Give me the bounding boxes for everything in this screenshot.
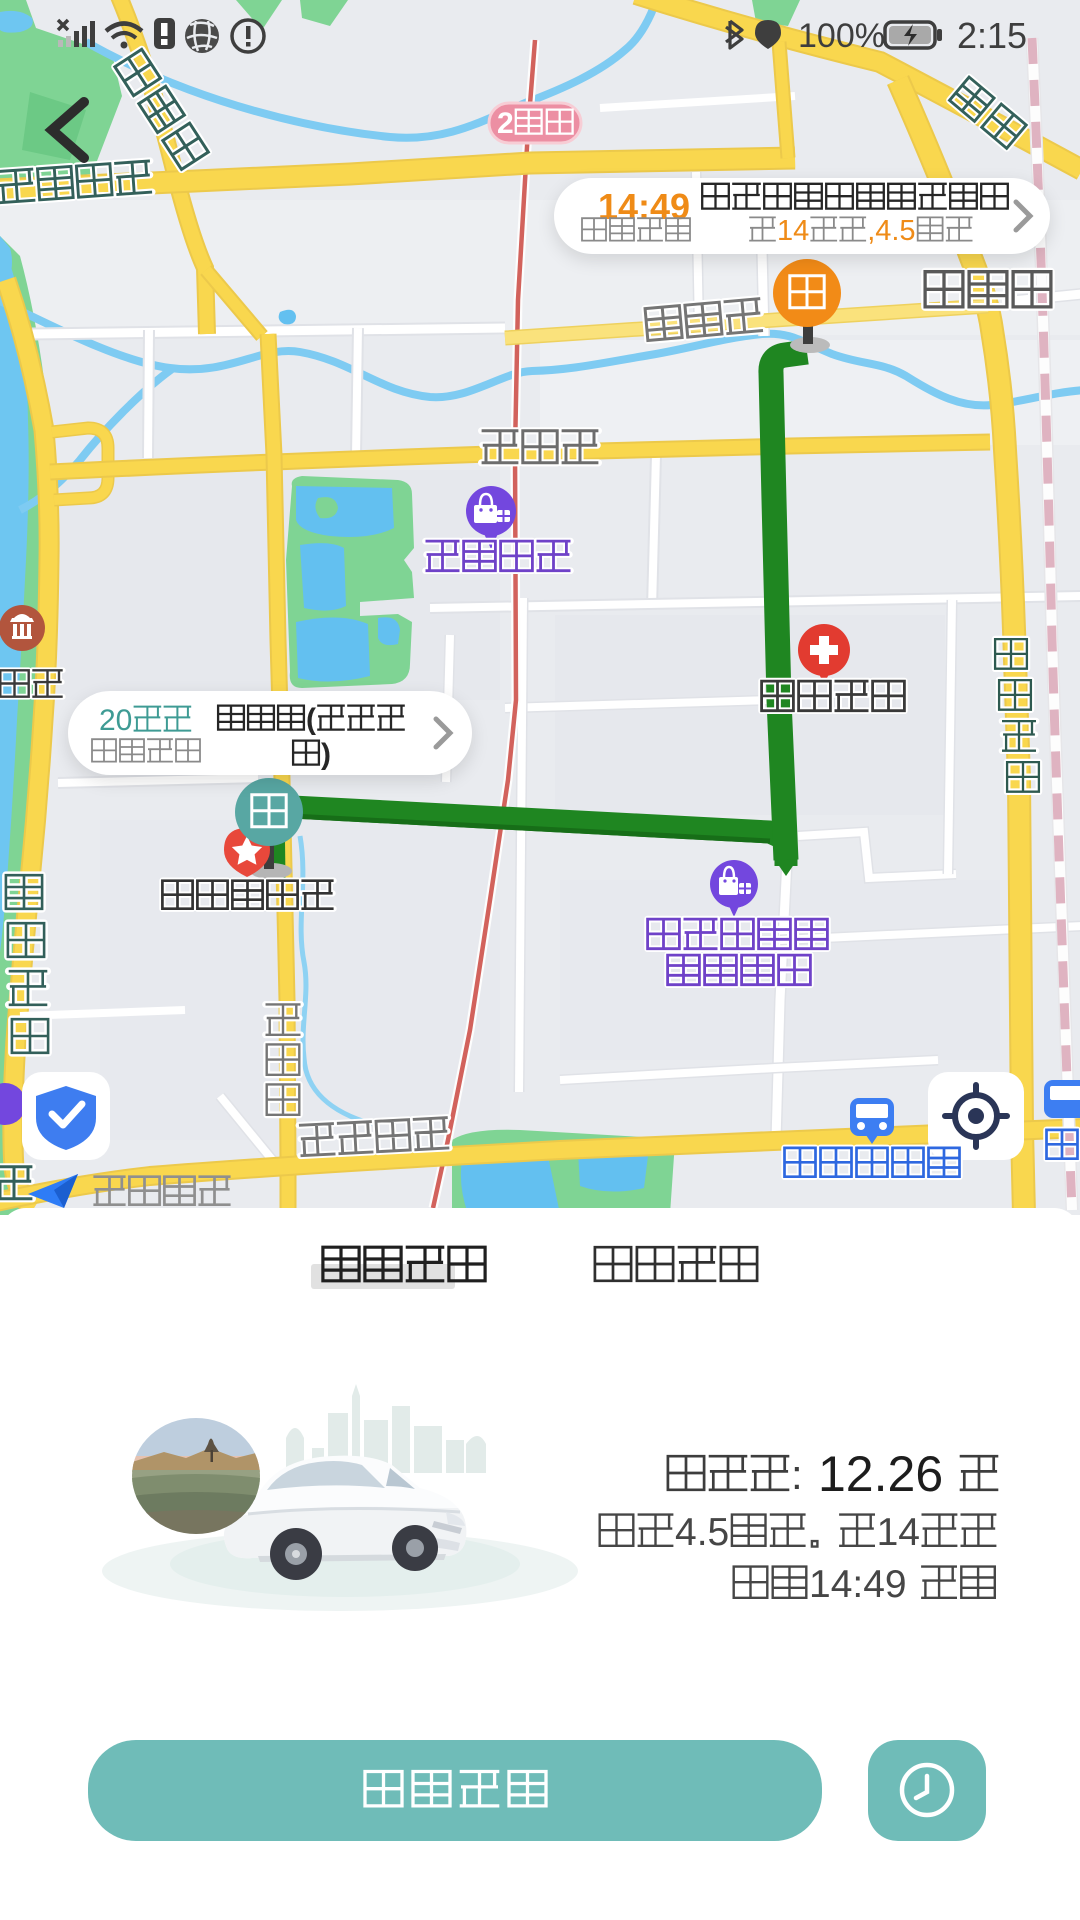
- svg-text:12.26: 12.26: [818, 1446, 943, 1502]
- svg-text::: :: [791, 1451, 803, 1498]
- svg-text:): ): [321, 738, 331, 771]
- svg-text:(: (: [306, 703, 316, 736]
- svg-text:2: 2: [497, 107, 514, 140]
- svg-text:14: 14: [877, 1511, 920, 1554]
- svg-text:2:15: 2:15: [957, 15, 1027, 56]
- svg-text:4.5: 4.5: [675, 1511, 729, 1554]
- svg-text:20: 20: [99, 704, 132, 737]
- svg-text:14:49: 14:49: [809, 1563, 907, 1606]
- svg-text:14: 14: [777, 215, 809, 247]
- svg-text:100%: 100%: [798, 17, 885, 55]
- svg-text:,4.5: ,4.5: [867, 215, 915, 247]
